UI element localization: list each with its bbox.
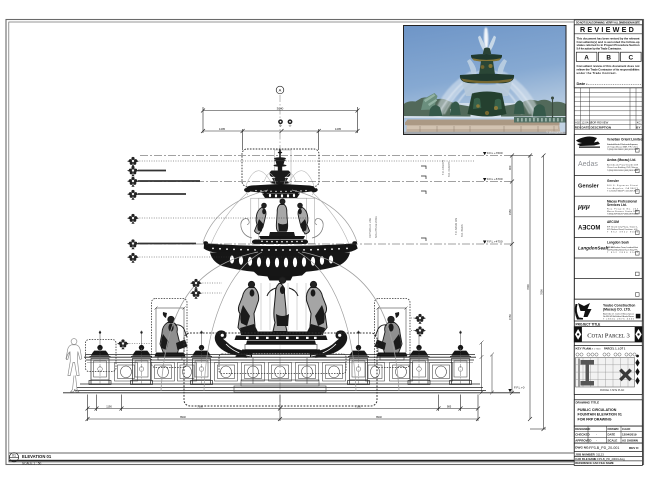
svg-text:A: A — [584, 54, 589, 61]
svg-text:SCULPTURE ZONE: SCULPTURE ZONE — [375, 216, 378, 238]
svg-text:985: 985 — [447, 404, 452, 408]
svg-text:AƎCOM: AƎCOM — [578, 226, 600, 232]
svg-text:500 S. Figueroa Street: 500 S. Figueroa Street — [607, 184, 638, 187]
svg-text:Alameda Dr. Carlos D'Assumpcao: Alameda Dr. Carlos D'Assumpcao — [603, 312, 635, 315]
svg-text:CHECKED: CHECKED — [575, 433, 589, 437]
svg-text:JOB NUMBER: JOB NUMBER — [575, 452, 595, 456]
svg-text:1190: 1190 — [106, 404, 112, 408]
svg-text:F.F.L +4750: F.F.L +4750 — [487, 239, 503, 243]
svg-text:1495: 1495 — [335, 127, 342, 131]
svg-text:4750: 4750 — [508, 314, 512, 320]
svg-text:SCALE 1 : 50: SCALE 1 : 50 — [22, 462, 42, 466]
svg-text:KC: KC — [637, 120, 641, 124]
svg-text:A: A — [279, 88, 282, 93]
svg-text:BY: BY — [636, 125, 640, 129]
svg-text:REFERENCE CAD FILE NAME: REFERENCE CAD FILE NAME — [575, 461, 614, 465]
svg-text:REV D: REV D — [629, 446, 639, 450]
svg-text:© photogallery: © photogallery — [546, 130, 563, 134]
svg-text:PARCEL 3 SITE PLAN: PARCEL 3 SITE PLAN — [600, 389, 624, 392]
svg-text:Gensler: Gensler — [578, 183, 600, 189]
svg-text:REVIEWED: REVIEWED — [580, 25, 636, 34]
svg-text:Langdon Seah: Langdon Seah — [607, 241, 629, 245]
svg-text:AS SHOWN: AS SHOWN — [622, 438, 638, 442]
svg-text:B.O. CANOPY: B.O. CANOPY — [448, 161, 451, 177]
svg-text:REV: REV — [575, 125, 581, 129]
svg-text:DESIGNED: DESIGNED — [575, 427, 590, 431]
svg-text:SCALE: SCALE — [608, 438, 618, 442]
svg-text:C: C — [628, 54, 633, 61]
svg-text:T (853) 2878 6625 F (853) 287: T (853) 2878 6625 F (853) 2878 6626 — [607, 214, 639, 216]
svg-text:FOUNTAIN ELEVATION 01: FOUNTAIN ELEVATION 01 — [578, 413, 622, 417]
svg-text:7160: 7160 — [355, 404, 361, 408]
svg-text:31123: 31123 — [596, 452, 604, 456]
svg-text:CAD FILE NAME FP3-B_PD_20001.d: CAD FILE NAME FP3-B_PD_20001.dwg — [575, 457, 625, 461]
svg-text:38/F AIA Kowloon Tower, Landma: 38/F AIA Kowloon Tower, Landmark East — [607, 246, 639, 249]
svg-text:T 1 213.327.3600 F 1 213.327.: T 1 213.327.3600 F 1 213.327.3601 — [607, 190, 639, 192]
svg-text:T 852 2830 3500: T 852 2830 3500 — [607, 252, 639, 254]
svg-text:APPROVED: APPROVED — [575, 438, 591, 442]
svg-text:T (853) 2833 1055 F (853) 283: T (853) 2833 1055 F (853) 2833 1066 — [607, 170, 639, 172]
svg-text:T 852 3922 9000: T 852 3922 9000 — [607, 232, 639, 234]
svg-text:ELEVATION 01: ELEVATION 01 — [22, 454, 52, 459]
svg-text:COTAI PARCEL 3: COTAI PARCEL 3 — [587, 332, 630, 339]
svg-text:LangdonSeah: LangdonSeah — [578, 246, 609, 251]
svg-text:DRAWING TITLE: DRAWING TITLE — [576, 401, 600, 405]
svg-text:12/04/2019: 12/04/2019 — [622, 433, 637, 437]
svg-text:DATE: DATE — [582, 125, 590, 129]
svg-text:T (853) 2875 3335: T (853) 2875 3335 — [603, 319, 635, 321]
svg-text:Los Angeles, CA 90071: Los Angeles, CA 90071 — [607, 187, 639, 190]
svg-text:FOR FRP DRAWING: FOR FRP DRAWING — [578, 417, 612, 421]
svg-text:(Macau) CO. LTD.: (Macau) CO. LTD. — [603, 308, 631, 312]
svg-text:01: 01 — [12, 453, 16, 457]
svg-text:-: - — [596, 438, 597, 442]
svg-text:Venetian Orient Limited: Venetian Orient Limited — [607, 138, 643, 142]
svg-text:No 335-341 Edf Hotline 8 Andar: No 335-341 Edf Hotline 8 Andar, Macau — [603, 315, 635, 318]
svg-text:CAAD: CAAD — [622, 427, 630, 431]
svg-text:Avenida da Praia Grande 409: Avenida da Praia Grande 409 — [607, 164, 639, 167]
svg-text:7160: 7160 — [197, 404, 203, 408]
svg-text:5.4 for action by the Trade Co: 5.4 for action by the Trade Contractor. — [577, 47, 622, 51]
svg-text:8/F Grand City Plaza, Tower 1,: 8/F Grand City Plaza, Tower 1, — [607, 225, 638, 228]
svg-text:T (853) 8118 2888 F (853) 811: T (853) 8118 2888 F (853) 8118 2889 — [607, 149, 639, 151]
svg-text:F.F.L +6700: F.F.L +6700 — [487, 177, 503, 181]
svg-text:PUBLIC CIRCULATION: PUBLIC CIRCULATION — [578, 408, 617, 412]
svg-text:under the Trade Contract.: under the Trade Contract. — [577, 71, 617, 75]
svg-text:DRAWN: DRAWN — [608, 427, 619, 431]
svg-text:Aedas: Aedas — [578, 161, 598, 168]
svg-text:DWG NO.: DWG NO. — [575, 446, 589, 450]
svg-text:B: B — [606, 54, 611, 61]
svg-text:AECOM: AECOM — [607, 220, 619, 224]
svg-text:900: 900 — [508, 165, 512, 170]
svg-text:1950: 1950 — [508, 209, 512, 215]
svg-text:T.O. BASIN RIM: T.O. BASIN RIM — [455, 218, 458, 235]
svg-text:s/n Taipa Macau SAR, P.R. Chin: s/n Taipa Macau SAR, P.R. China — [607, 146, 639, 149]
svg-text:PROJECT TITLE: PROJECT TITLE — [576, 322, 601, 326]
svg-text:DESCRIPTION: DESCRIPTION — [591, 125, 612, 129]
svg-text:SCALE 1:7500: SCALE 1:7500 — [586, 347, 601, 350]
svg-text:100 How Ming Street, Kwun Tong: 100 How Ming Street, Kwun Tong, H.K. — [607, 249, 638, 252]
svg-text:-: - — [596, 433, 597, 437]
svg-text:A02: A02 — [575, 120, 580, 124]
svg-text:Gensler: Gensler — [607, 179, 620, 183]
svg-text:7600: 7600 — [539, 289, 543, 295]
svg-text:μμμ: μμμ — [577, 204, 590, 211]
svg-text:8940: 8940 — [180, 415, 186, 419]
svg-text:Services Ltd.: Services Ltd. — [607, 203, 627, 207]
svg-text:Date :: Date : — [577, 81, 588, 86]
svg-text:1495: 1495 — [219, 127, 226, 131]
svg-text:F.F.L +0: F.F.L +0 — [514, 386, 525, 390]
svg-text:3040: 3040 — [277, 106, 284, 110]
svg-text:Aedas (Macau) Ltd.: Aedas (Macau) Ltd. — [607, 158, 636, 162]
svg-text:T.O. CANOPY: T.O. CANOPY — [442, 159, 445, 175]
svg-text:625 Nathan Road, Kowloon, H.K.: 625 Nathan Road, Kowloon, H.K. — [607, 228, 638, 231]
svg-text:8940: 8940 — [376, 415, 382, 419]
svg-text:DATE: DATE — [608, 433, 616, 437]
svg-text:Macau Finance Centre 10/F: Macau Finance Centre 10/F — [607, 210, 639, 213]
svg-text:B.O. BASIN: B.O. BASIN — [461, 224, 464, 237]
svg-text:Estrada da Baia de N. Senhora: Estrada da Baia de N. Senhora da Esperan… — [607, 143, 639, 146]
svg-text:FP3-B_PD_20-001: FP3-B_PD_20-001 — [589, 446, 619, 450]
svg-text:7600: 7600 — [526, 284, 530, 290]
svg-text:PARCEL 1, LOT 1: PARCEL 1, LOT 1 — [604, 347, 626, 351]
svg-text:F.F.L +7600: F.F.L +7600 — [487, 151, 503, 155]
svg-text:FRP MOULD LINE: FRP MOULD LINE — [369, 218, 372, 238]
svg-text:FOR REVIEW: FOR REVIEW — [591, 120, 609, 124]
